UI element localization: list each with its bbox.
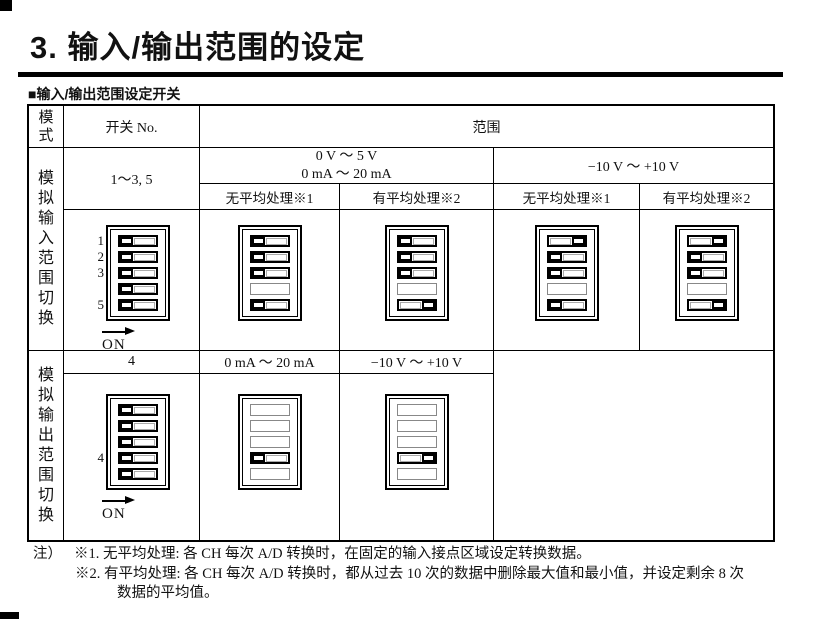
dip-knob — [689, 253, 702, 261]
dip-knob — [399, 253, 412, 261]
dip-switch-number-label — [93, 283, 104, 295]
dip-switch-body — [238, 225, 302, 321]
dip-slot-2 — [687, 251, 727, 263]
dip-switch-number-label: 1 — [93, 235, 104, 247]
dip-knob — [399, 269, 412, 277]
on-label: ON — [102, 337, 126, 350]
scan-artifact-top-left — [0, 0, 12, 11]
dip-switch-number-label — [93, 420, 104, 432]
dip-knob — [712, 301, 725, 309]
footnote-2-line1: ※2. 有平均处理: 各 CH 每次 A/D 转换时，都从过去 10 次的数据中… — [75, 565, 744, 585]
dip-slot-track — [703, 254, 724, 261]
dip-slot-3 — [547, 267, 587, 279]
dip-cell-output-0ma — [199, 373, 339, 540]
dip-switch-number-label — [93, 404, 104, 416]
dip-switch-number-label — [93, 436, 104, 448]
dip-slot-5 — [118, 468, 158, 480]
dip-slot-track — [550, 238, 571, 245]
footnote-2-line2: 数据的平均值。 — [117, 584, 744, 604]
dip-slot-3 — [250, 267, 290, 279]
dip-switch-inner-frame — [110, 229, 166, 317]
range-pm10v-output: −10 V ～ +10 V — [339, 350, 493, 373]
dip-switch-body — [238, 394, 302, 490]
on-direction-arrow-icon — [102, 496, 135, 505]
dip-knob — [422, 454, 435, 462]
dip-switch-number-label: 2 — [93, 251, 104, 263]
dip-slot-5 — [547, 299, 587, 311]
dip-switch-body — [675, 225, 739, 321]
dip-slot-2 — [250, 251, 290, 263]
dip-slot-track — [134, 302, 155, 309]
dip-knob — [252, 237, 265, 245]
dip-switch-number-labels: 4 — [93, 394, 104, 480]
dip-slot-1 — [547, 235, 587, 247]
footnote-1-text: ※1. 无平均处理: 各 CH 每次 A/D 转换时，在固定的输入接点区域设定转… — [74, 546, 591, 562]
footnote-1: 注）※1. 无平均处理: 各 CH 每次 A/D 转换时，在固定的输入接点区域设… — [33, 545, 744, 565]
dip-slot-4 — [250, 283, 290, 295]
dip-slot-1 — [118, 404, 158, 416]
dip-knob — [549, 269, 562, 277]
dip-slot-1 — [687, 235, 727, 247]
dip-slot-4 — [397, 452, 437, 464]
dip-slot-track — [134, 238, 155, 245]
dip-slot-4 — [687, 283, 727, 295]
dip-knob — [120, 470, 133, 478]
dip-slot-track — [134, 286, 155, 293]
dip-knob — [120, 237, 133, 245]
dip-switch-inner-frame — [679, 229, 735, 317]
dip-slot-3 — [687, 267, 727, 279]
header-mode: 模式 — [29, 106, 63, 147]
dip-cell-output-pm10v — [339, 373, 493, 540]
dip-slot-track — [400, 302, 421, 309]
dip-switch-output-pm10v — [385, 394, 449, 490]
dip-slot-track — [134, 407, 155, 414]
dip-switch-number-label — [93, 468, 104, 480]
dip-knob — [252, 253, 265, 261]
dip-switch-inner-frame — [389, 229, 445, 317]
dip-switch-input-0v5v-avg — [385, 225, 449, 321]
dip-slot-3 — [397, 267, 437, 279]
dip-knob — [252, 301, 265, 309]
dip-switch-number-label: 4 — [93, 452, 104, 464]
dip-cell-input-0v5v-no-avg — [199, 209, 339, 350]
dip-slot-2 — [118, 251, 158, 263]
header-range: 范围 — [199, 106, 773, 147]
dip-slot-1 — [250, 235, 290, 247]
dip-knob — [399, 237, 412, 245]
dip-slot-3 — [397, 436, 437, 448]
dip-slot-4 — [397, 283, 437, 295]
dip-knob — [252, 454, 265, 462]
dip-knob — [120, 285, 133, 293]
dip-slot-3 — [118, 267, 158, 279]
io-range-setting-table: 模式 开关 No. 范围 模拟输入范围切换 1～3, 5 0 V ～ 5 V 0… — [27, 104, 775, 542]
range-0v-5v-0ma-20ma: 0 V ～ 5 V 0 mA ～ 20 mA — [199, 147, 493, 183]
dip-slot-track — [134, 270, 155, 277]
dip-slot-track — [703, 270, 724, 277]
dip-slot-2 — [397, 420, 437, 432]
dip-slot-3 — [250, 436, 290, 448]
empty-cell-output-band — [493, 350, 773, 540]
dip-knob — [252, 269, 265, 277]
dip-slot-5 — [250, 299, 290, 311]
range-line-voltage: 0 V ～ 5 V — [316, 148, 377, 166]
dip-knob — [120, 301, 133, 309]
footnote-prefix: 注） — [33, 545, 62, 565]
mode-label-analog-output: 模拟输出范围切换 — [29, 350, 63, 540]
dip-knob — [120, 422, 133, 430]
subheader-no-averaging-2: 无平均处理※1 — [493, 183, 639, 209]
dip-switch-inner-frame — [539, 229, 595, 317]
dip-slot-1 — [397, 404, 437, 416]
dip-switch-input-pm10v-no-avg — [535, 225, 599, 321]
dip-cell-input-reference: 1235ON — [63, 209, 199, 350]
dip-knob — [572, 237, 585, 245]
dip-slot-track — [563, 270, 584, 277]
dip-slot-5 — [397, 468, 437, 480]
dip-slot-5 — [397, 299, 437, 311]
dip-switch-number-labels: 1235 — [93, 225, 104, 311]
dip-cell-output-reference: 4ON — [63, 373, 199, 540]
dip-switch-body — [385, 225, 449, 321]
switch-no-input: 1～3, 5 — [63, 147, 199, 209]
range-pm10v-input: −10 V ～ +10 V — [493, 147, 773, 183]
dip-switch-output-reference: 4ON — [93, 394, 170, 523]
dip-knob — [120, 269, 133, 277]
dip-knob — [422, 301, 435, 309]
dip-switch-output-0ma — [238, 394, 302, 490]
dip-switch-body — [535, 225, 599, 321]
dip-cell-input-pm10v-no-avg — [493, 209, 639, 350]
dip-slot-4 — [118, 283, 158, 295]
dip-switch-input-pm10v-avg — [675, 225, 739, 321]
dip-slot-track — [690, 238, 711, 245]
dip-slot-2 — [397, 251, 437, 263]
dip-knob — [120, 454, 133, 462]
dip-switch-number-label: 5 — [93, 299, 104, 311]
on-label: ON — [102, 506, 126, 523]
subheader-no-averaging-1: 无平均处理※1 — [199, 183, 339, 209]
footnotes: 注）※1. 无平均处理: 各 CH 每次 A/D 转换时，在固定的输入接点区域设… — [33, 545, 744, 604]
dip-slot-3 — [118, 436, 158, 448]
dip-slot-track — [134, 471, 155, 478]
dip-slot-2 — [250, 420, 290, 432]
dip-switch-inner-frame — [110, 398, 166, 486]
dip-switch-inner-frame — [242, 398, 298, 486]
dip-slot-track — [563, 302, 584, 309]
dip-knob — [689, 269, 702, 277]
dip-switch-inner-frame — [389, 398, 445, 486]
dip-slot-5 — [250, 468, 290, 480]
dip-cell-input-pm10v-avg — [639, 209, 773, 350]
dip-switch-body — [106, 225, 170, 321]
dip-switch-body — [385, 394, 449, 490]
dip-knob — [549, 253, 562, 261]
dip-cell-input-0v5v-avg — [339, 209, 493, 350]
dip-slot-track — [266, 455, 287, 462]
range-line-current: 0 mA ～ 20 mA — [301, 166, 391, 184]
section-heading: ■输入/输出范围设定开关 — [28, 84, 180, 104]
dip-knob — [549, 301, 562, 309]
dip-slot-track — [413, 238, 434, 245]
dip-slot-4 — [118, 452, 158, 464]
dip-slot-track — [134, 439, 155, 446]
dip-switch-number-label: 3 — [93, 267, 104, 279]
dip-switch-body — [106, 394, 170, 490]
switch-no-output: 4 — [63, 350, 199, 373]
range-0ma-20ma-output: 0 mA ～ 20 mA — [199, 350, 339, 373]
dip-slot-track — [134, 254, 155, 261]
dip-slot-1 — [250, 404, 290, 416]
dip-switch-inner-frame — [242, 229, 298, 317]
dip-slot-track — [413, 254, 434, 261]
dip-slot-5 — [687, 299, 727, 311]
header-switch-no: 开关 No. — [63, 106, 199, 147]
dip-slot-1 — [118, 235, 158, 247]
dip-slot-4 — [250, 452, 290, 464]
dip-slot-track — [690, 302, 711, 309]
dip-slot-track — [266, 302, 287, 309]
dip-slot-track — [266, 270, 287, 277]
dip-knob — [120, 253, 133, 261]
dip-slot-track — [134, 423, 155, 430]
title-underline-rule — [18, 72, 783, 77]
dip-slot-track — [563, 254, 584, 261]
dip-switch-input-reference: 1235ON — [93, 225, 170, 350]
subheader-averaging-1: 有平均处理※2 — [339, 183, 493, 209]
dip-slot-track — [400, 455, 421, 462]
page-title: 3. 输入/输出范围的设定 — [30, 22, 365, 67]
dip-switch-input-0v5v-no-avg — [238, 225, 302, 321]
dip-slot-track — [266, 238, 287, 245]
on-direction-arrow-icon — [102, 327, 135, 336]
dip-knob — [712, 237, 725, 245]
dip-slot-track — [266, 254, 287, 261]
dip-slot-5 — [118, 299, 158, 311]
dip-slot-4 — [547, 283, 587, 295]
dip-slot-track — [134, 455, 155, 462]
dip-slot-1 — [397, 235, 437, 247]
scan-artifact-bottom-left — [0, 612, 19, 619]
dip-knob — [120, 406, 133, 414]
dip-slot-track — [413, 270, 434, 277]
mode-label-analog-input: 模拟输入范围切换 — [29, 147, 63, 350]
dip-knob — [120, 438, 133, 446]
subheader-averaging-2: 有平均处理※2 — [639, 183, 773, 209]
dip-slot-2 — [118, 420, 158, 432]
dip-slot-2 — [547, 251, 587, 263]
